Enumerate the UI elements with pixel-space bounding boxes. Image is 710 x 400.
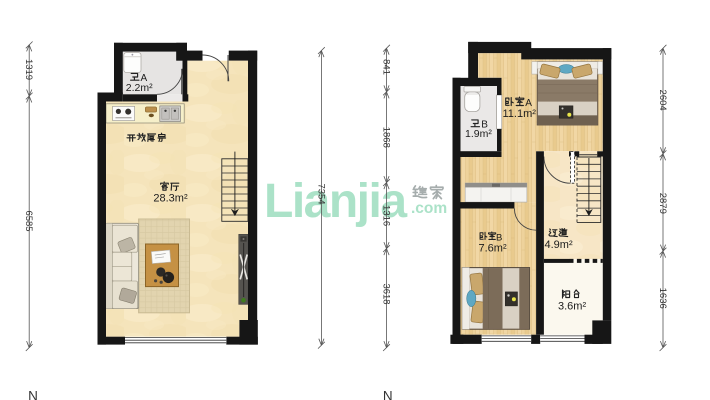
svg-text:7.6m²: 7.6m²	[479, 243, 507, 255]
svg-text:.com: .com	[411, 200, 447, 217]
svg-text:841: 841	[381, 59, 392, 75]
svg-text:1636: 1636	[657, 288, 668, 309]
svg-text:1868: 1868	[381, 127, 392, 148]
svg-text:N: N	[383, 389, 393, 400]
svg-text:N: N	[28, 389, 38, 400]
svg-text:3.6m²: 3.6m²	[558, 300, 586, 312]
svg-text:28.3m²: 28.3m²	[153, 192, 188, 204]
svg-text:2879: 2879	[657, 193, 668, 214]
svg-text:3618: 3618	[381, 283, 392, 304]
svg-text:1.9m²: 1.9m²	[465, 128, 492, 140]
svg-text:2.2m²: 2.2m²	[126, 82, 153, 94]
svg-text:4.9m²: 4.9m²	[545, 239, 573, 251]
svg-text:7354: 7354	[315, 183, 326, 204]
svg-text:1316: 1316	[381, 205, 392, 226]
svg-text:2604: 2604	[657, 90, 668, 111]
svg-text:6585: 6585	[23, 210, 34, 231]
svg-text:1319: 1319	[23, 59, 34, 80]
svg-text:11.1m²: 11.1m²	[503, 108, 537, 120]
